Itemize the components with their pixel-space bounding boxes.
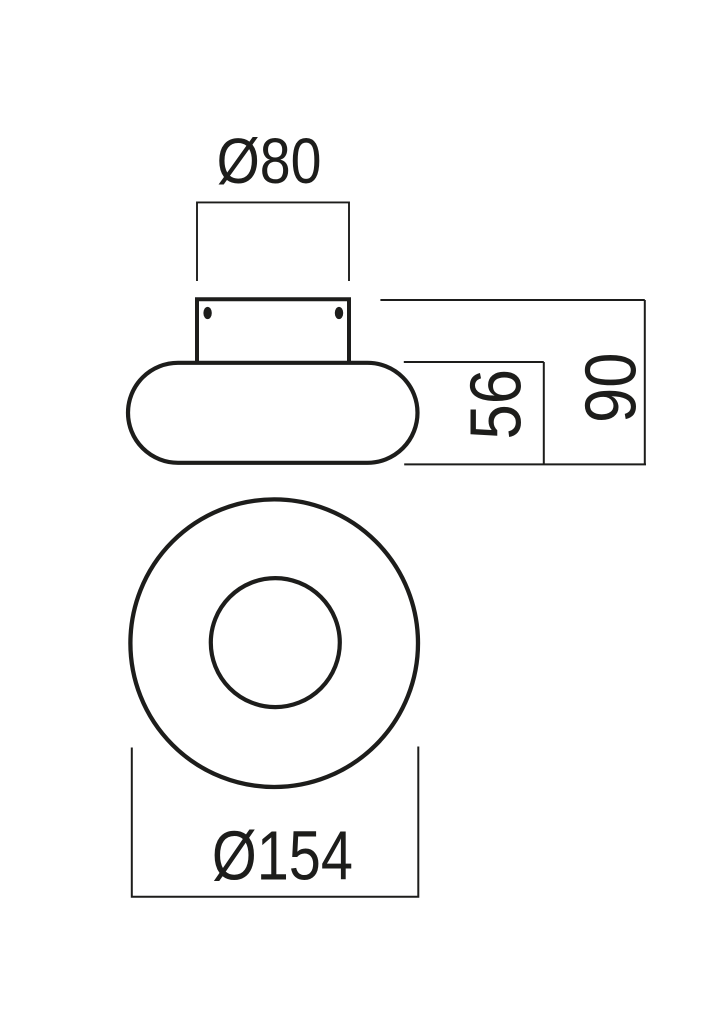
svg-text:90: 90 bbox=[572, 353, 652, 423]
svg-text:56: 56 bbox=[457, 369, 537, 439]
svg-text:Ø80: Ø80 bbox=[217, 125, 322, 197]
svg-text:Ø154: Ø154 bbox=[212, 816, 353, 895]
